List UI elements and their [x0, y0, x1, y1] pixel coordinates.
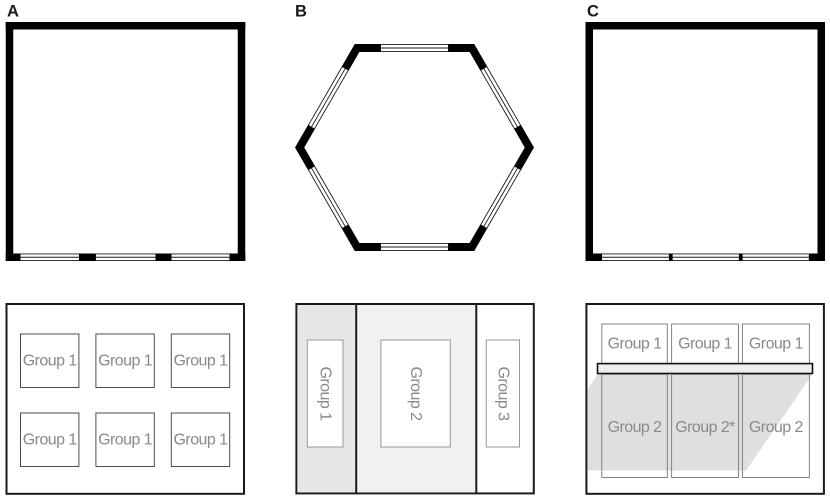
svg-text:Group 1: Group 1 [98, 353, 153, 370]
svg-text:Group 1: Group 1 [23, 353, 78, 370]
svg-text:Group 1: Group 1 [23, 432, 78, 449]
svg-text:Group 1: Group 1 [608, 336, 663, 353]
svg-text:A: A [7, 3, 19, 21]
svg-text:Group 1: Group 1 [174, 432, 229, 449]
svg-text:Group 1: Group 1 [678, 336, 733, 353]
svg-text:B: B [295, 3, 307, 21]
svg-text:Group 2: Group 2 [407, 367, 424, 422]
svg-text:Group 1: Group 1 [749, 336, 804, 353]
svg-text:Group 2*: Group 2* [675, 419, 735, 436]
svg-text:Group 1: Group 1 [317, 367, 334, 422]
svg-text:Group 3: Group 3 [494, 367, 511, 422]
svg-text:Group 1: Group 1 [174, 353, 229, 370]
svg-text:Group 2: Group 2 [749, 419, 804, 436]
svg-text:C: C [587, 3, 599, 21]
svg-text:Group 1: Group 1 [98, 432, 153, 449]
svg-text:Group 2: Group 2 [608, 419, 663, 436]
